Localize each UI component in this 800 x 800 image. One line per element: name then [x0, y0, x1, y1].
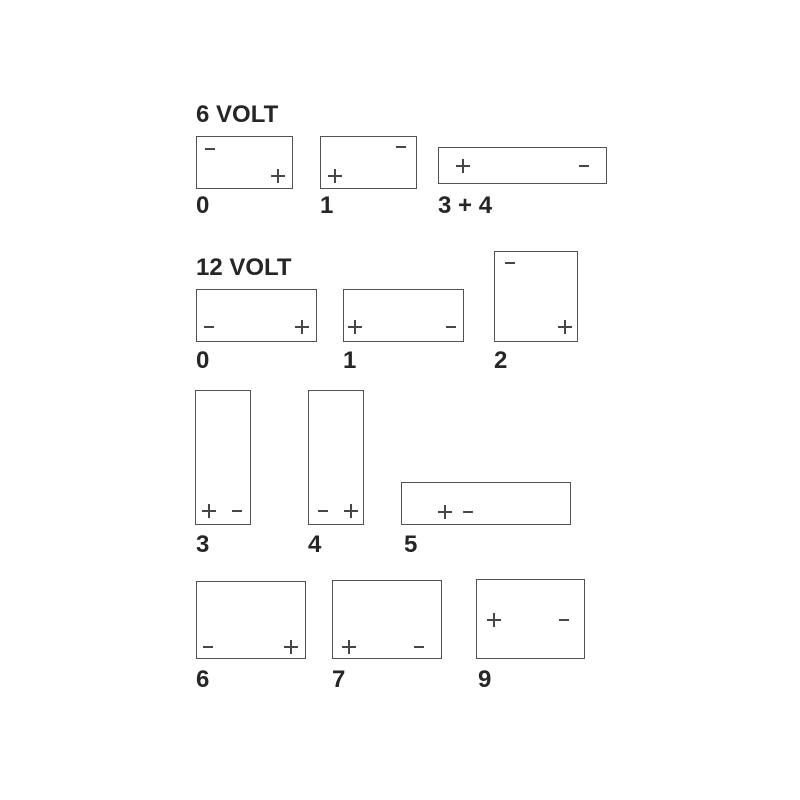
- minus-terminal-icon: [577, 159, 591, 173]
- section-title-6-volt: 6 VOLT: [196, 103, 278, 127]
- minus-terminal-icon: [201, 640, 215, 654]
- minus-terminal-icon: [444, 320, 458, 334]
- section-title-12-volt: 12 VOLT: [196, 256, 292, 280]
- plus-terminal-icon: [342, 640, 356, 654]
- plus-terminal-icon: [328, 169, 342, 183]
- minus-terminal-icon: [412, 640, 426, 654]
- plus-terminal-icon: [558, 320, 572, 334]
- battery-box-12v-9: [476, 579, 585, 659]
- battery-type-label-6v-0: 0: [196, 194, 209, 218]
- battery-box-12v-5: [401, 482, 571, 525]
- plus-terminal-icon: [348, 320, 362, 334]
- plus-terminal-icon: [438, 505, 452, 519]
- minus-terminal-icon: [202, 320, 216, 334]
- battery-type-label-12v-2: 2: [494, 349, 507, 373]
- minus-terminal-icon: [230, 504, 244, 518]
- plus-terminal-icon: [344, 504, 358, 518]
- plus-terminal-icon: [202, 504, 216, 518]
- minus-terminal-icon: [203, 142, 217, 156]
- battery-box-12v-1: [343, 289, 464, 342]
- battery-type-label-12v-3: 3: [196, 533, 209, 557]
- battery-box-12v-3: [195, 390, 251, 525]
- plus-terminal-icon: [295, 320, 309, 334]
- battery-box-6v-0: [196, 136, 293, 189]
- plus-terminal-icon: [271, 169, 285, 183]
- battery-type-label-12v-9: 9: [478, 668, 491, 692]
- minus-terminal-icon: [503, 256, 517, 270]
- battery-type-label-12v-0: 0: [196, 349, 209, 373]
- minus-terminal-icon: [461, 505, 475, 519]
- battery-box-6v-3-4: [438, 147, 607, 184]
- minus-terminal-icon: [316, 504, 330, 518]
- battery-box-12v-0: [196, 289, 317, 342]
- plus-terminal-icon: [456, 159, 470, 173]
- battery-type-label-6v-3-4: 3 + 4: [438, 194, 492, 218]
- battery-box-12v-6: [196, 581, 306, 659]
- battery-type-label-12v-4: 4: [308, 533, 321, 557]
- battery-box-12v-2: [494, 251, 578, 342]
- plus-terminal-icon: [284, 640, 298, 654]
- battery-box-12v-4: [308, 390, 364, 525]
- battery-type-label-12v-7: 7: [332, 668, 345, 692]
- battery-type-label-6v-1: 1: [320, 194, 333, 218]
- battery-type-label-12v-6: 6: [196, 668, 209, 692]
- battery-box-6v-1: [320, 136, 417, 189]
- battery-type-label-12v-5: 5: [404, 533, 417, 557]
- battery-terminal-diagram: 6 VOLT 0 1 3 + 4 12 VOLT 0 1 2 3 4: [0, 0, 800, 800]
- battery-type-label-12v-1: 1: [343, 349, 356, 373]
- plus-terminal-icon: [487, 613, 501, 627]
- minus-terminal-icon: [557, 613, 571, 627]
- minus-terminal-icon: [394, 140, 408, 154]
- battery-box-12v-7: [332, 580, 442, 659]
